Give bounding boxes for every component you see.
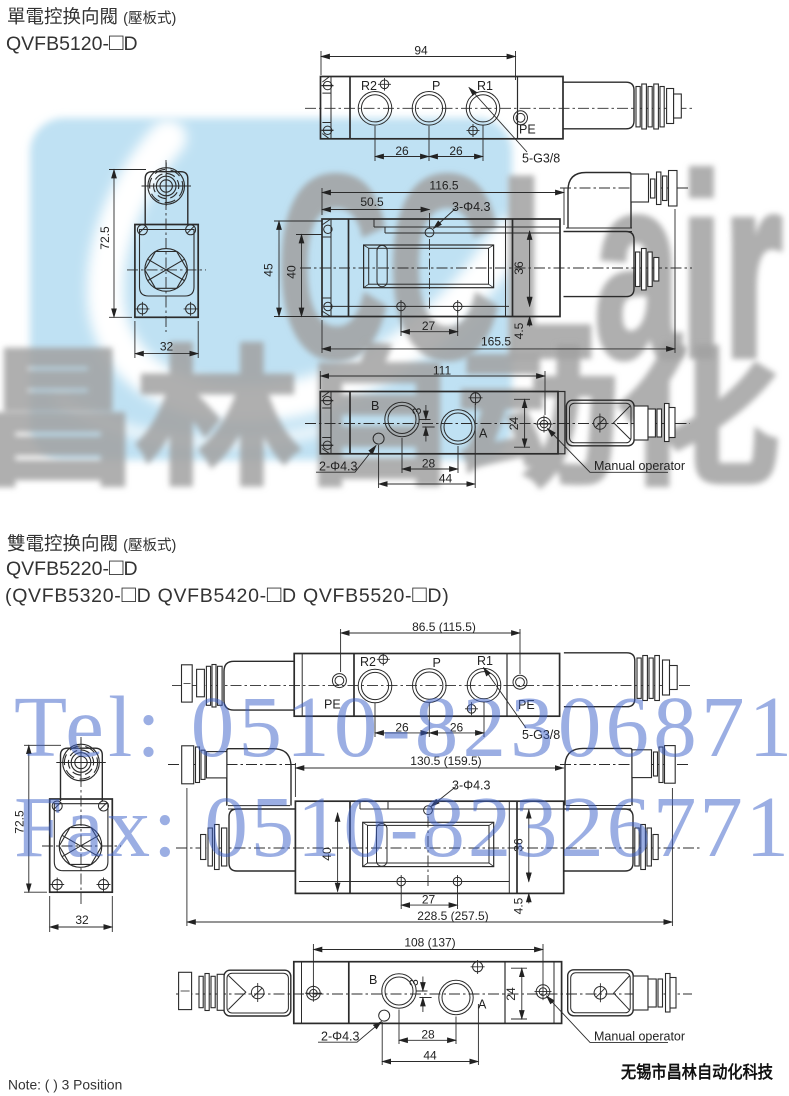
svg-text:R1: R1	[477, 79, 493, 93]
svg-text:108 (137): 108 (137)	[404, 936, 455, 950]
svg-text:24: 24	[504, 987, 518, 1001]
svg-text:228.5 (257.5): 228.5 (257.5)	[417, 909, 488, 923]
svg-text:PE: PE	[519, 123, 536, 137]
svg-text:72.5: 72.5	[98, 226, 112, 250]
svg-text:26: 26	[395, 144, 409, 158]
svg-text:45: 45	[262, 263, 276, 277]
svg-text:40: 40	[285, 265, 299, 279]
svg-text:Manual operator: Manual operator	[594, 1029, 685, 1043]
svg-text:44: 44	[423, 1049, 437, 1063]
svg-text:165.5: 165.5	[481, 335, 511, 349]
svg-text:P: P	[433, 656, 441, 670]
svg-text:26: 26	[449, 144, 463, 158]
svg-text:雙電控换向閥 (壓板式): 雙電控换向閥 (壓板式)	[7, 533, 176, 554]
svg-text:P: P	[432, 79, 440, 93]
svg-text:32: 32	[75, 913, 89, 927]
svg-text:3: 3	[410, 407, 424, 414]
svg-text:32: 32	[160, 340, 174, 354]
svg-text:B: B	[369, 973, 377, 987]
svg-text:94: 94	[414, 44, 428, 58]
svg-text:QVFB5120-□D: QVFB5120-□D	[6, 29, 138, 56]
svg-text:86.5 (115.5): 86.5 (115.5)	[412, 620, 476, 634]
svg-text:28: 28	[421, 1028, 435, 1042]
svg-text:Manual operator: Manual operator	[594, 459, 685, 473]
svg-text:B: B	[371, 399, 379, 413]
svg-text:4.5: 4.5	[512, 322, 526, 339]
svg-text:24: 24	[507, 417, 521, 431]
svg-text:27: 27	[422, 319, 436, 333]
svg-text:QVFB5220-□D: QVFB5220-□D	[6, 554, 138, 581]
svg-text:Fax: 0510-82326771: Fax: 0510-82326771	[14, 778, 789, 875]
svg-text:Tel: 0510-82306871: Tel: 0510-82306871	[14, 678, 789, 775]
svg-text:111: 111	[433, 364, 452, 378]
svg-text:Note: ( ) 3 Position: Note: ( ) 3 Position	[8, 1078, 122, 1093]
svg-text:R2: R2	[360, 655, 376, 669]
svg-text:27: 27	[422, 893, 436, 907]
svg-text:44: 44	[439, 472, 453, 486]
svg-text:50.5: 50.5	[360, 195, 384, 209]
svg-text:R2: R2	[361, 79, 377, 93]
svg-text:A: A	[479, 427, 488, 441]
svg-text:无锡市昌林自动化科技: 无锡市昌林自动化科技	[620, 1062, 774, 1082]
svg-text:A: A	[478, 998, 487, 1012]
svg-text:5-G3/8: 5-G3/8	[522, 152, 560, 166]
svg-text:(QVFB5320-□D QVFB5420-□D QVF: (QVFB5320-□D QVFB5420-□D QVFB5520-□D)	[5, 581, 449, 608]
svg-text:36: 36	[512, 261, 526, 275]
svg-text:116.5: 116.5	[429, 179, 458, 193]
svg-text:28: 28	[422, 456, 436, 470]
svg-text:單電控换向閥 (壓板式): 單電控换向閥 (壓板式)	[7, 6, 176, 27]
svg-text:2-Φ4.3: 2-Φ4.3	[321, 1030, 360, 1044]
svg-text:R1: R1	[477, 654, 493, 668]
svg-text:2-Φ4.3: 2-Φ4.3	[319, 460, 358, 474]
svg-text:3: 3	[407, 979, 421, 986]
svg-text:3-Φ4.3: 3-Φ4.3	[452, 200, 491, 214]
svg-text:4.5: 4.5	[512, 897, 526, 914]
